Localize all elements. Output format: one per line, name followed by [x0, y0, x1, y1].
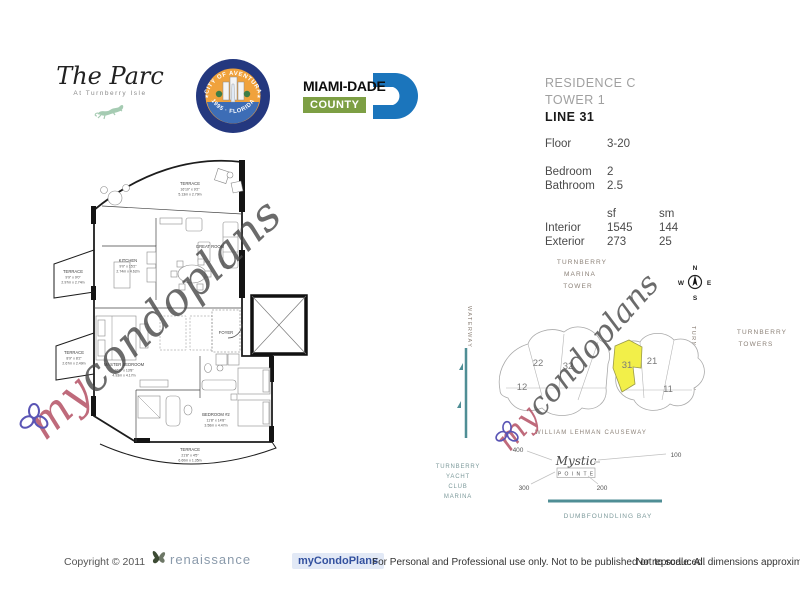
bathroom-label: Bathroom — [545, 180, 607, 192]
floor-value: 3-20 — [607, 138, 630, 150]
svg-text:YACHT: YACHT — [446, 474, 470, 480]
svg-text:BEDROOM #2: BEDROOM #2 — [202, 412, 230, 417]
distance-leader-lines — [527, 451, 666, 484]
line-label: LINE 31 — [545, 110, 745, 124]
unit-21: 21 — [647, 356, 658, 367]
terrace-ul-outline — [54, 250, 94, 298]
trillium-icon-right — [494, 420, 520, 446]
miami-dade-county-badge: COUNTY — [303, 97, 366, 113]
unit-22: 22 — [533, 358, 544, 369]
miami-dade-logo: MIAMI-DADE COUNTY — [303, 72, 423, 122]
causeway-label: WILLIAM LEHMAN CAUSEWAY — [535, 430, 647, 436]
compass-icon: N S W E — [678, 265, 712, 302]
distance-300: 300 — [519, 485, 530, 492]
city-of-aventura-seal: CITY OF AVENTURA 1995 · FLORIDA ★ ★ — [195, 58, 271, 139]
seal-palm-right — [244, 91, 250, 97]
svg-text:TERRACE: TERRACE — [63, 269, 83, 274]
svg-text:MASTER BEDROOM: MASTER BEDROOM — [104, 362, 145, 367]
svg-text:TERRACE: TERRACE — [64, 350, 84, 355]
area-header-row: sf sm — [545, 208, 745, 220]
floor-label: Floor — [545, 138, 607, 150]
seal-palm-left — [216, 91, 222, 97]
svg-text:MARINA: MARINA — [564, 271, 596, 278]
svg-text:TERRACE: TERRACE — [180, 181, 200, 186]
svg-text:TOWERS: TOWERS — [738, 341, 773, 348]
building-left — [499, 327, 609, 416]
svg-text:2.97m x 2.74m: 2.97m x 2.74m — [61, 281, 84, 285]
svg-text:6.60m x 1.35m: 6.60m x 1.35m — [178, 459, 201, 463]
svg-text:E: E — [707, 280, 712, 287]
svg-text:TOWER: TOWER — [563, 283, 593, 290]
svg-text:MARINA: MARINA — [444, 494, 472, 500]
bathroom-row: Bathroom 2.5 — [545, 180, 745, 192]
bedroom-value: 2 — [607, 166, 613, 178]
interior-label: Interior — [545, 222, 607, 234]
yacht-club-label: TURNBERRY YACHT CLUB MARINA — [436, 464, 480, 500]
the-parc-logo: The Parc At Turnberry Isle — [50, 64, 170, 125]
svg-text:16'2" x 13'8": 16'2" x 13'8" — [114, 369, 134, 373]
closets — [160, 316, 212, 350]
svg-text:Mystic: Mystic — [555, 454, 597, 468]
bay-label: DUMBFOUNDLING BAY — [564, 513, 653, 520]
room-labels: TERRACE 16'10" x 9'2" 5.13m x 2.79m KITC… — [61, 181, 233, 463]
gecko-icon — [93, 100, 127, 120]
elevator-shaft — [252, 296, 306, 354]
svg-text:9'0" x 15'2": 9'0" x 15'2" — [119, 265, 137, 269]
svg-text:TERRACE: TERRACE — [180, 447, 200, 452]
svg-text:16'10" x 9'2": 16'10" x 9'2" — [180, 188, 200, 192]
distance-100: 100 — [671, 452, 682, 459]
building-cluster: 22 32 12 31 21 11 — [499, 327, 704, 416]
exterior-row: Exterior 273 25 — [545, 236, 745, 248]
butterfly-icon — [150, 545, 168, 567]
distance-400: 400 — [513, 447, 524, 454]
seal-star-right: ★ — [257, 94, 262, 100]
floor-row: Floor 3-20 — [545, 138, 745, 150]
interior-row: Interior 1545 144 — [545, 222, 745, 234]
svg-text:CLUB: CLUB — [448, 484, 467, 490]
condo-plan-page: The Parc At Turnberry Isle — [0, 0, 800, 600]
waterway-label: WATERWAY — [466, 306, 472, 348]
svg-text:TURNBERRY: TURNBERRY — [557, 259, 607, 266]
boat-icons — [455, 363, 466, 410]
seal-star-left: ★ — [205, 94, 210, 100]
svg-text:3.56m x 4.47m: 3.56m x 4.47m — [204, 424, 227, 428]
marina-tower-label: TURNBERRY MARINA TOWER — [557, 259, 607, 290]
col-sm: sm — [659, 208, 674, 220]
exterior-sf: 273 — [607, 236, 659, 248]
svg-text:W: W — [678, 280, 685, 287]
terrace-glass-wall — [102, 206, 242, 214]
bathroom-value: 2.5 — [607, 180, 623, 192]
trillium-icon-left — [18, 402, 50, 434]
svg-text:GREAT ROOM: GREAT ROOM — [196, 244, 225, 249]
floor-plan: TERRACE 16'10" x 9'2" 5.13m x 2.79m KITC… — [40, 158, 330, 478]
site-map: TURNBERRY MARINA TOWER N S W E TURNBERRY… — [430, 248, 800, 538]
svg-text:11'8" x 14'8": 11'8" x 14'8" — [207, 419, 227, 423]
mycondoplans-badge: myCondoPlans — [292, 553, 384, 569]
turnberry-towers-label: TURNBERRY TOWERS — [737, 329, 787, 348]
parc-subtitle: At Turnberry Isle — [50, 90, 170, 97]
residence-label: RESIDENCE C — [545, 76, 745, 90]
svg-text:N: N — [693, 265, 698, 272]
svg-text:9'9" x 9'0": 9'9" x 9'0" — [65, 276, 81, 280]
svg-text:5.13m x 2.79m: 5.13m x 2.79m — [178, 193, 201, 197]
renaissance-logo: renaissance — [150, 545, 251, 567]
interior-sf: 1545 — [607, 222, 659, 234]
unit-12: 12 — [517, 382, 528, 393]
distance-200: 200 — [597, 485, 608, 492]
unit-11: 11 — [663, 384, 673, 395]
svg-text:KITCHEN: KITCHEN — [119, 258, 137, 263]
unit-31: 31 — [622, 360, 633, 371]
unit-info-panel: RESIDENCE C TOWER 1 LINE 31 Floor 3-20 B… — [545, 76, 745, 250]
scale-note: Not to scale. All dimensions approximate… — [636, 557, 800, 568]
svg-text:TURNBERRY: TURNBERRY — [737, 329, 787, 336]
svg-text:2.67m x 2.49m: 2.67m x 2.49m — [62, 362, 85, 366]
renaissance-text: renaissance — [170, 552, 251, 567]
svg-text:21'8" x 4'5": 21'8" x 4'5" — [181, 454, 199, 458]
parc-title: The Parc — [50, 64, 170, 88]
svg-text:FOYER: FOYER — [219, 330, 233, 335]
miami-dade-name: MIAMI-DADE — [303, 78, 386, 94]
svg-text:TURNBERRY: TURNBERRY — [436, 464, 480, 470]
unit-32: 32 — [563, 361, 574, 372]
col-sf: sf — [607, 208, 659, 220]
exterior-sm: 25 — [659, 236, 672, 248]
svg-text:2.74m x 4.62m: 2.74m x 4.62m — [116, 270, 139, 274]
bedroom-row: Bedroom 2 — [545, 166, 745, 178]
interior-sm: 144 — [659, 222, 678, 234]
tower-label: TOWER 1 — [545, 93, 745, 107]
exterior-label: Exterior — [545, 236, 607, 248]
copyright-text: Copyright © 2011 — [64, 556, 145, 568]
svg-text:4.93m x 4.17m: 4.93m x 4.17m — [112, 374, 135, 378]
mystic-pointe-logo: Mystic P O I N T E — [555, 454, 600, 478]
bedroom-label: Bedroom — [545, 166, 607, 178]
svg-text:S: S — [693, 295, 698, 302]
svg-text:8'9" x 8'2": 8'9" x 8'2" — [66, 357, 82, 361]
